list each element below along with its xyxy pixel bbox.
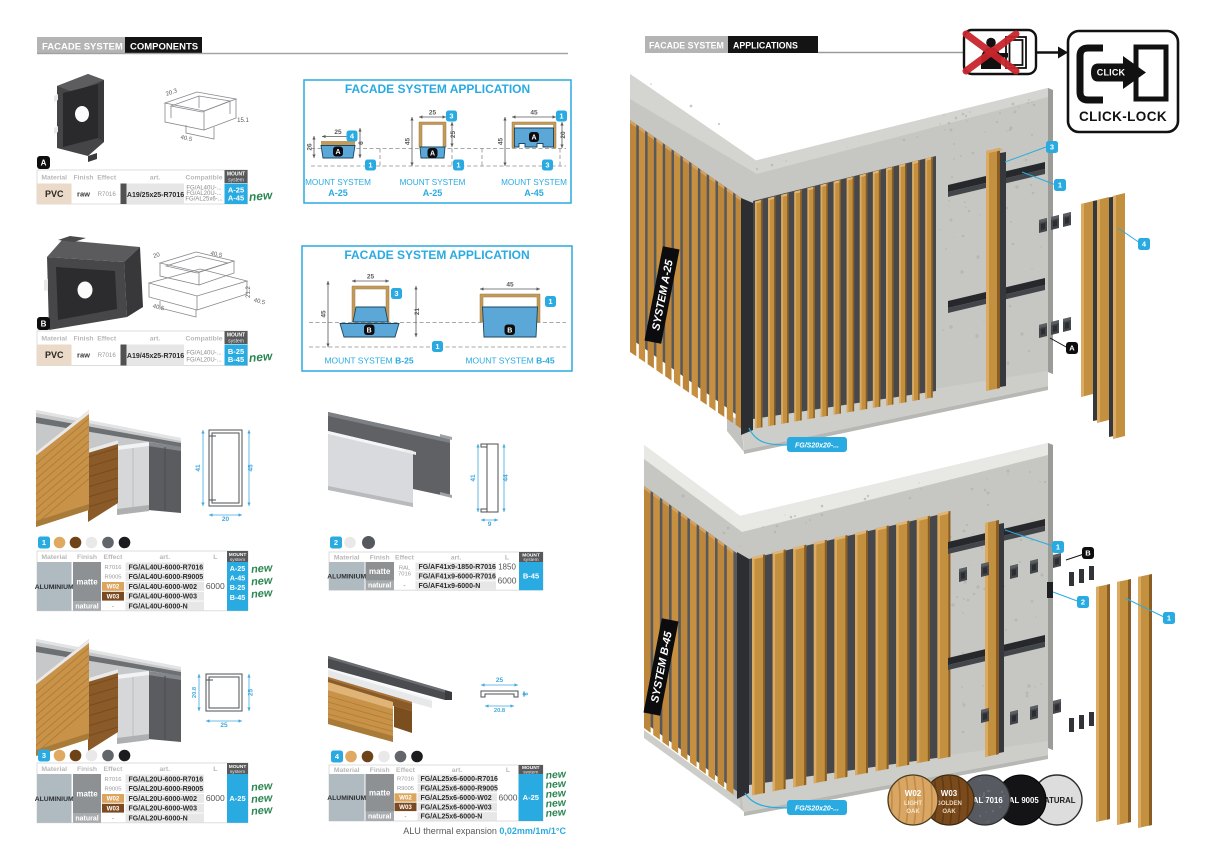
svg-text:45: 45: [506, 282, 514, 289]
svg-text:new: new: [251, 587, 275, 601]
svg-text:OAK: OAK: [942, 809, 956, 815]
svg-text:A: A: [41, 158, 47, 167]
svg-text:B: B: [41, 319, 47, 328]
svg-text:FG/AL25x6-6000-W03: FG/AL25x6-6000-W03: [421, 804, 492, 811]
svg-text:raw: raw: [77, 189, 90, 198]
svg-text:40.5: 40.5: [152, 304, 165, 313]
svg-text:3: 3: [42, 751, 46, 760]
svg-text:W02: W02: [905, 789, 922, 798]
svg-text:FACADE SYSTEM: FACADE SYSTEM: [649, 41, 724, 51]
svg-text:FG/S20x20-...: FG/S20x20-...: [795, 806, 839, 813]
svg-text:20: 20: [153, 252, 162, 260]
svg-text:FG/AL25x6-6000-N: FG/AL25x6-6000-N: [421, 814, 483, 821]
svg-text:W03: W03: [107, 805, 120, 812]
svg-text:system: system: [228, 178, 244, 184]
svg-text:25: 25: [450, 131, 457, 139]
svg-text:matte: matte: [369, 567, 391, 576]
svg-text:FG/AL25x6-6000-R9005: FG/AL25x6-6000-R9005: [421, 786, 499, 793]
svg-text:A: A: [1069, 344, 1075, 353]
svg-text:20.3: 20.3: [165, 88, 179, 98]
svg-text:L: L: [505, 555, 509, 562]
svg-text:25: 25: [429, 110, 437, 117]
svg-text:1: 1: [548, 297, 552, 306]
svg-text:FG/AL25x6-...: FG/AL25x6-...: [185, 197, 223, 203]
svg-text:A-25: A-25: [230, 564, 246, 573]
svg-text:20.8: 20.8: [494, 708, 506, 714]
svg-text:A: A: [335, 149, 340, 156]
svg-text:25: 25: [496, 677, 504, 684]
svg-text:FG/AL40U-...: FG/AL40U-...: [186, 351, 222, 357]
svg-text:Compatible: Compatible: [185, 175, 222, 182]
svg-text:matte: matte: [369, 789, 391, 798]
svg-text:R7016: R7016: [397, 777, 414, 783]
svg-text:45: 45: [498, 138, 505, 146]
svg-text:A: A: [531, 135, 536, 142]
svg-text:R7016: R7016: [104, 777, 121, 783]
svg-text:MOUNT SYSTEM B-25: MOUNT SYSTEM B-25: [324, 356, 413, 366]
svg-text:raw: raw: [77, 351, 90, 360]
svg-text:1: 1: [456, 161, 460, 170]
svg-text:W02: W02: [107, 584, 120, 591]
svg-text:45: 45: [530, 110, 538, 117]
svg-text:ALUMINIUM: ALUMINIUM: [35, 584, 74, 591]
svg-text:MOUNT SYSTEM: MOUNT SYSTEM: [305, 178, 371, 187]
svg-text:FG/AL25x6-6000-W02: FG/AL25x6-6000-W02: [421, 795, 492, 802]
svg-text:A-25: A-25: [523, 793, 539, 802]
svg-text:PVC: PVC: [45, 189, 64, 199]
svg-text:FG/AL20U-6000-R9005: FG/AL20U-6000-R9005: [129, 786, 204, 793]
svg-text:MOUNT SYSTEM: MOUNT SYSTEM: [501, 178, 567, 187]
svg-text:FG/AL40U-6000-W03: FG/AL40U-6000-W03: [129, 594, 198, 601]
svg-text:Finish: Finish: [77, 554, 97, 561]
svg-text:ALUMINIUM: ALUMINIUM: [35, 796, 74, 803]
svg-text:3: 3: [1050, 143, 1054, 152]
svg-text:FG/AL20U-...: FG/AL20U-...: [186, 358, 222, 364]
svg-text:Material: Material: [334, 555, 360, 562]
svg-text:6: 6: [358, 141, 365, 145]
svg-text:-: -: [404, 813, 406, 820]
svg-text:B: B: [367, 327, 372, 334]
svg-text:PVC: PVC: [45, 350, 64, 360]
svg-text:system: system: [228, 339, 244, 345]
svg-text:FG/AF41x9-1850-R7016: FG/AF41x9-1850-R7016: [419, 564, 497, 571]
svg-text:FG/AL40U-6000-N: FG/AL40U-6000-N: [129, 603, 188, 610]
svg-text:natural: natural: [368, 814, 391, 821]
svg-text:-: -: [112, 815, 114, 822]
svg-text:GOLDEN: GOLDEN: [936, 801, 962, 807]
svg-text:7016: 7016: [398, 571, 411, 577]
svg-text:art.: art.: [150, 336, 161, 343]
svg-text:25: 25: [334, 129, 342, 136]
svg-text:1: 1: [559, 112, 563, 121]
svg-text:3: 3: [394, 289, 398, 298]
svg-text:R9005: R9005: [397, 786, 414, 792]
svg-text:FG/AL25x6-6000-R7016: FG/AL25x6-6000-R7016: [421, 776, 499, 783]
svg-text:1: 1: [1058, 181, 1062, 190]
svg-text:FG/AL20U-6000-W03: FG/AL20U-6000-W03: [129, 806, 198, 813]
svg-text:41: 41: [195, 464, 202, 472]
svg-text:ALUMINIUM: ALUMINIUM: [327, 574, 366, 581]
svg-text:matte: matte: [76, 577, 98, 586]
svg-text:CLICK-LOCK: CLICK-LOCK: [1079, 109, 1167, 124]
svg-text:25: 25: [248, 689, 255, 697]
svg-text:6000: 6000: [498, 576, 517, 586]
svg-text:FG/AL40U-6000-R9005: FG/AL40U-6000-R9005: [129, 574, 204, 581]
svg-text:21: 21: [414, 308, 421, 316]
svg-text:FG/S20x20-...: FG/S20x20-...: [795, 443, 839, 450]
svg-text:1: 1: [368, 161, 372, 170]
svg-text:1850: 1850: [498, 562, 516, 571]
svg-text:W02: W02: [107, 796, 120, 803]
svg-text:1: 1: [42, 538, 46, 547]
svg-text:Material: Material: [41, 175, 67, 182]
svg-text:system: system: [230, 769, 245, 775]
svg-text:A-45: A-45: [524, 188, 544, 198]
svg-text:art.: art.: [160, 554, 171, 561]
svg-text:new: new: [545, 806, 567, 820]
svg-text:L: L: [213, 554, 217, 561]
svg-text:MOUNT SYSTEM: MOUNT SYSTEM: [400, 178, 466, 187]
svg-text:B-45: B-45: [230, 593, 246, 602]
svg-text:L: L: [213, 766, 217, 773]
svg-text:A-25: A-25: [229, 794, 245, 803]
svg-text:R7016: R7016: [98, 352, 117, 359]
svg-text:FACADE SYSTEM APPLICATION: FACADE SYSTEM APPLICATION: [345, 82, 530, 96]
svg-text:6000: 6000: [499, 792, 518, 802]
svg-text:-: -: [403, 583, 405, 590]
svg-text:9: 9: [488, 521, 492, 528]
svg-text:FG/AF41x9-6000-N: FG/AF41x9-6000-N: [419, 583, 481, 590]
svg-text:Effect: Effect: [395, 555, 415, 562]
svg-text:A-45: A-45: [228, 193, 244, 202]
svg-text:40.5: 40.5: [253, 298, 266, 307]
svg-text:3: 3: [545, 161, 549, 170]
svg-text:art.: art.: [150, 175, 161, 182]
svg-text:20: 20: [222, 516, 230, 523]
svg-text:A-25: A-25: [328, 188, 348, 198]
svg-text:art.: art.: [451, 555, 462, 562]
svg-text:-: -: [112, 603, 114, 610]
svg-text:ALU thermal expansion 0,02mm/1: ALU thermal expansion 0,02mm/1m/1°C: [403, 826, 566, 836]
svg-text:W03: W03: [399, 804, 412, 811]
svg-text:1: 1: [1167, 614, 1171, 623]
svg-text:Material: Material: [334, 767, 360, 774]
svg-text:1: 1: [435, 342, 439, 351]
svg-text:Effect: Effect: [97, 336, 117, 343]
svg-text:art.: art.: [160, 766, 171, 773]
svg-text:6000: 6000: [206, 793, 225, 803]
svg-text:MOUNT SYSTEM B-45: MOUNT SYSTEM B-45: [465, 356, 554, 366]
svg-text:B: B: [507, 327, 512, 334]
svg-text:A19/25x25-R7016: A19/25x25-R7016: [127, 192, 184, 199]
svg-text:45: 45: [405, 138, 412, 146]
svg-text:15.1: 15.1: [237, 118, 249, 124]
svg-text:natural: natural: [75, 815, 98, 822]
svg-text:40.5: 40.5: [210, 251, 223, 259]
svg-text:1: 1: [1056, 543, 1060, 552]
svg-text:Effect: Effect: [104, 766, 124, 773]
svg-text:W03: W03: [941, 789, 958, 798]
svg-text:A: A: [430, 151, 435, 158]
svg-text:3: 3: [449, 112, 453, 121]
svg-text:FG/AF41x9-6000-R7016: FG/AF41x9-6000-R7016: [419, 574, 497, 581]
svg-text:Finish: Finish: [77, 766, 97, 773]
svg-text:6000: 6000: [206, 581, 225, 591]
svg-text:APPLICATIONS: APPLICATIONS: [733, 41, 798, 51]
svg-text:new: new: [251, 804, 275, 818]
svg-text:45: 45: [248, 464, 255, 472]
svg-text:44: 44: [503, 474, 510, 482]
svg-text:Material: Material: [41, 766, 67, 773]
svg-text:Effect: Effect: [396, 767, 416, 774]
svg-text:25: 25: [367, 274, 375, 281]
svg-text:ALUMINIUM: ALUMINIUM: [327, 795, 366, 802]
svg-text:OAK: OAK: [906, 809, 920, 815]
svg-text:new: new: [248, 349, 273, 365]
svg-text:R7016: R7016: [104, 565, 121, 571]
svg-text:Finish: Finish: [370, 767, 390, 774]
svg-text:B-25: B-25: [230, 583, 246, 592]
svg-text:FACADE SYSTEM APPLICATION: FACADE SYSTEM APPLICATION: [344, 248, 529, 262]
svg-text:20.8: 20.8: [192, 686, 198, 698]
svg-text:2: 2: [334, 538, 338, 547]
svg-text:FG/AL40U-6000-W02: FG/AL40U-6000-W02: [129, 584, 198, 591]
svg-text:6: 6: [524, 692, 530, 695]
svg-text:45: 45: [321, 310, 328, 318]
svg-text:B-45: B-45: [523, 572, 539, 581]
svg-text:B-45: B-45: [228, 355, 244, 364]
svg-text:25: 25: [220, 722, 228, 729]
svg-text:A-25: A-25: [423, 188, 443, 198]
svg-text:B: B: [1085, 549, 1091, 558]
svg-text:COMPONENTS: COMPONENTS: [130, 42, 198, 53]
svg-text:FACADE SYSTEM: FACADE SYSTEM: [42, 42, 123, 53]
svg-text:R9005: R9005: [104, 575, 121, 581]
svg-text:CLICK: CLICK: [1097, 68, 1126, 78]
svg-text:Material: Material: [41, 336, 67, 343]
svg-text:2: 2: [1081, 598, 1085, 607]
svg-text:art.: art.: [452, 767, 463, 774]
svg-text:R9005: R9005: [104, 787, 121, 793]
svg-text:new: new: [248, 188, 273, 204]
svg-text:A19/45x25-R7016: A19/45x25-R7016: [127, 353, 184, 360]
svg-text:26: 26: [307, 143, 314, 151]
svg-text:A-45: A-45: [230, 574, 246, 583]
svg-text:Finish: Finish: [370, 555, 390, 562]
svg-text:Effect: Effect: [97, 175, 117, 182]
svg-text:natural: natural: [368, 583, 391, 590]
svg-text:system: system: [230, 557, 245, 563]
svg-text:21.2: 21.2: [246, 286, 252, 298]
svg-text:Compatible: Compatible: [185, 336, 222, 343]
svg-text:FG/AL40U-6000-R7016: FG/AL40U-6000-R7016: [129, 564, 204, 571]
svg-text:Finish: Finish: [73, 175, 93, 182]
svg-text:Finish: Finish: [73, 336, 93, 343]
svg-text:natural: natural: [75, 603, 98, 610]
svg-text:W02: W02: [399, 795, 412, 802]
svg-text:R7016: R7016: [98, 191, 117, 198]
svg-text:40.5: 40.5: [180, 135, 193, 143]
svg-text:FG/AL20U-6000-N: FG/AL20U-6000-N: [129, 815, 188, 822]
svg-text:W03: W03: [107, 593, 120, 600]
svg-text:matte: matte: [76, 789, 98, 798]
svg-text:LIGHT: LIGHT: [904, 801, 922, 807]
svg-text:FG/AL20U-6000-W02: FG/AL20U-6000-W02: [129, 796, 198, 803]
svg-text:FG/AL20U-6000-R7016: FG/AL20U-6000-R7016: [129, 776, 204, 783]
svg-text:Effect: Effect: [104, 554, 124, 561]
svg-text:L: L: [506, 767, 510, 774]
svg-text:20: 20: [560, 131, 567, 139]
svg-text:41: 41: [470, 474, 477, 482]
svg-text:Material: Material: [41, 554, 67, 561]
